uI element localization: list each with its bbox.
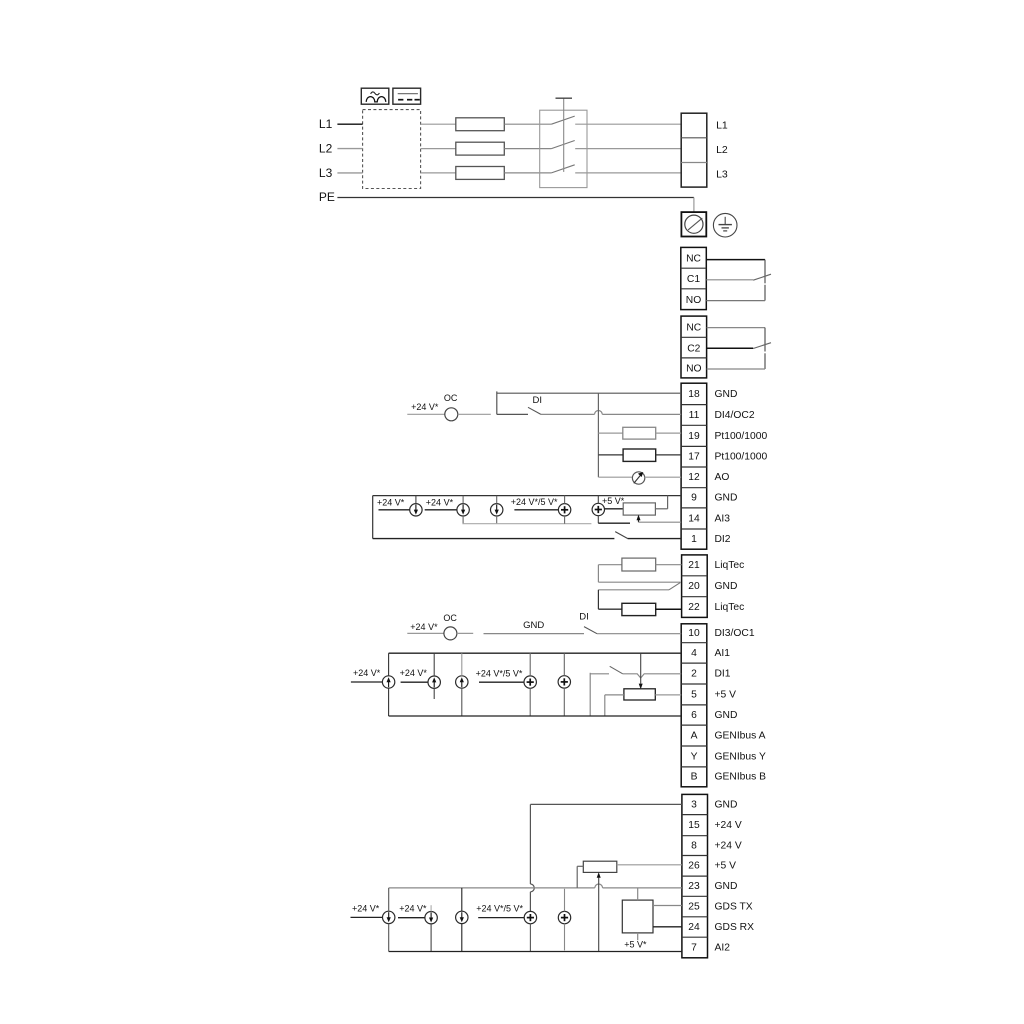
svg-text:DI: DI: [533, 395, 543, 406]
svg-text:GND: GND: [715, 389, 738, 400]
svg-text:B: B: [691, 772, 698, 783]
svg-text:14: 14: [688, 513, 700, 524]
svg-text:GND: GND: [523, 620, 544, 631]
svg-text:+24 V*/5 V*: +24 V*/5 V*: [511, 497, 558, 507]
svg-text:+5 V: +5 V: [715, 689, 737, 700]
svg-text:17: 17: [688, 452, 700, 463]
svg-text:10: 10: [688, 628, 700, 639]
svg-text:+24 V*: +24 V*: [352, 904, 380, 914]
svg-text:11: 11: [689, 410, 700, 421]
svg-text:GND: GND: [715, 799, 738, 810]
svg-text:+24 V: +24 V: [715, 841, 742, 852]
svg-text:AO: AO: [715, 472, 730, 483]
svg-text:20: 20: [688, 581, 700, 592]
svg-text:GND: GND: [715, 710, 738, 721]
svg-text:+5 V*: +5 V*: [602, 496, 625, 506]
svg-text:L3: L3: [319, 166, 333, 180]
svg-text:+24 V*: +24 V*: [410, 622, 438, 632]
svg-text:NC: NC: [686, 254, 701, 265]
svg-text:+24 V*: +24 V*: [411, 402, 439, 412]
svg-text:GDS TX: GDS TX: [715, 901, 753, 912]
svg-text:+24 V*/5 V*: +24 V*/5 V*: [476, 668, 523, 678]
svg-text:23: 23: [688, 881, 700, 892]
svg-text:AI2: AI2: [715, 942, 731, 953]
svg-text:3: 3: [691, 799, 697, 810]
svg-text:DI: DI: [579, 612, 589, 623]
svg-text:+5 V: +5 V: [715, 861, 737, 872]
svg-text:+24 V: +24 V: [715, 820, 742, 831]
svg-text:OC: OC: [443, 613, 457, 623]
svg-text:9: 9: [691, 493, 697, 504]
svg-text:NO: NO: [686, 295, 701, 306]
svg-text:+24 V*: +24 V*: [377, 497, 405, 507]
svg-text:PE: PE: [319, 190, 335, 204]
svg-text:GND: GND: [715, 493, 738, 504]
svg-text:GND: GND: [715, 581, 738, 592]
svg-text:DI1: DI1: [715, 668, 731, 679]
svg-text:DI3/OC1: DI3/OC1: [715, 628, 755, 639]
svg-text:L3: L3: [716, 169, 728, 181]
svg-text:LiqTec: LiqTec: [715, 560, 745, 571]
svg-text:L2: L2: [319, 142, 333, 156]
svg-text:+24 V*: +24 V*: [400, 668, 428, 678]
svg-text:NO: NO: [686, 364, 701, 375]
svg-text:15: 15: [688, 820, 700, 831]
svg-text:Pt100/1000: Pt100/1000: [715, 452, 768, 463]
svg-text:6: 6: [691, 710, 697, 721]
svg-text:AI3: AI3: [715, 513, 731, 524]
svg-text:DI4/OC2: DI4/OC2: [715, 410, 755, 421]
svg-text:GDS RX: GDS RX: [715, 922, 755, 933]
svg-text:22: 22: [688, 602, 700, 613]
svg-text:26: 26: [688, 861, 700, 872]
svg-text:7: 7: [691, 942, 697, 953]
svg-text:A: A: [691, 730, 698, 741]
svg-text:5: 5: [691, 689, 697, 700]
svg-text:2: 2: [691, 668, 697, 679]
svg-text:18: 18: [688, 389, 700, 400]
svg-text:OC: OC: [444, 393, 458, 403]
svg-text:NC: NC: [686, 322, 701, 333]
svg-text:19: 19: [688, 431, 700, 442]
svg-text:L2: L2: [716, 144, 728, 156]
svg-text:GENIbus B: GENIbus B: [715, 772, 767, 783]
svg-text:+5 V*: +5 V*: [624, 939, 647, 949]
svg-text:GENIbus Y: GENIbus Y: [715, 751, 766, 762]
svg-text:1: 1: [691, 534, 697, 545]
svg-text:25: 25: [688, 901, 700, 912]
svg-text:L1: L1: [716, 119, 728, 131]
svg-text:24: 24: [688, 922, 700, 933]
svg-text:LiqTec: LiqTec: [715, 602, 745, 613]
svg-text:Y: Y: [691, 751, 698, 762]
svg-text:+24 V*: +24 V*: [353, 668, 381, 678]
svg-text:12: 12: [688, 472, 700, 483]
svg-text:+24 V*/5 V*: +24 V*/5 V*: [476, 904, 523, 914]
svg-text:GENIbus A: GENIbus A: [715, 730, 766, 741]
svg-text:+24 V*: +24 V*: [426, 497, 454, 507]
svg-text:C1: C1: [687, 274, 700, 285]
svg-text:AI1: AI1: [715, 648, 731, 659]
svg-text:Pt100/1000: Pt100/1000: [715, 431, 768, 442]
svg-text:8: 8: [691, 841, 697, 852]
svg-text:21: 21: [688, 560, 700, 571]
svg-text:L1: L1: [319, 117, 333, 131]
svg-text:DI2: DI2: [715, 534, 731, 545]
svg-text:C2: C2: [687, 343, 700, 354]
svg-text:GND: GND: [715, 881, 738, 892]
svg-text:4: 4: [691, 648, 697, 659]
svg-text:+24 V*: +24 V*: [399, 904, 427, 914]
